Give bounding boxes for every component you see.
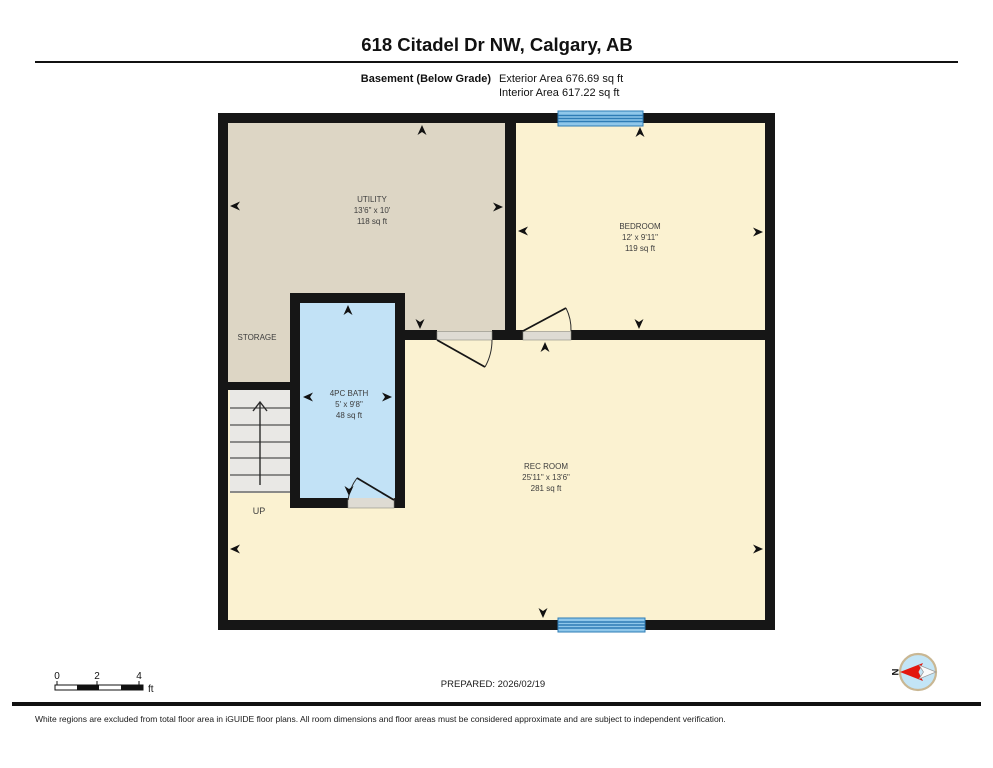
- up-label: UP: [253, 506, 266, 516]
- bath-room-area: 48 sq ft: [336, 411, 363, 420]
- bath-room-label: 4PC BATH: [330, 389, 369, 398]
- scale-tick-2: 2: [94, 671, 100, 682]
- window-bottom-icon: [558, 618, 645, 632]
- utility-room-dims: 13'6" x 10': [354, 206, 391, 215]
- rec-room-label: REC ROOM: [524, 462, 568, 471]
- utility-room-area: 118 sq ft: [357, 217, 388, 226]
- floor-plan-canvas: 618 Citadel Dr NW, Calgary, AB Basement …: [0, 0, 993, 768]
- footer-divider: [12, 702, 981, 706]
- rec-room-dims: 25'11" x 13'6": [522, 473, 570, 482]
- rec-room-area: 281 sq ft: [531, 484, 562, 493]
- header-divider: [35, 61, 958, 63]
- scale-bar: 0 2 4 ft: [54, 671, 154, 695]
- disclaimer-text: White regions are excluded from total fl…: [35, 714, 726, 724]
- scale-tick-4: 4: [136, 671, 142, 682]
- bedroom-room-dims: 12' x 9'11": [622, 233, 658, 242]
- bedroom-room-area: 119 sq ft: [625, 244, 656, 253]
- page-title: 618 Citadel Dr NW, Calgary, AB: [361, 34, 632, 55]
- window-top-icon: [558, 111, 643, 126]
- floor-plan-page: 618 Citadel Dr NW, Calgary, AB Basement …: [0, 0, 993, 768]
- bath-room-dims: 5' x 9'8": [335, 400, 363, 409]
- exterior-area-label: Exterior Area 676.69 sq ft: [499, 73, 623, 85]
- north-label: N: [891, 668, 902, 675]
- bath-door-threshold: [348, 497, 394, 508]
- stairs: [230, 390, 290, 493]
- scale-unit-label: ft: [148, 684, 154, 695]
- floor-plan: UTILITY 13'6" x 10' 118 sq ft BEDROOM 12…: [218, 111, 775, 632]
- scale-tick-0: 0: [54, 671, 60, 682]
- floor-label: Basement (Below Grade): [361, 73, 492, 85]
- utility-room-label: UTILITY: [357, 195, 387, 204]
- bedroom-room-label: BEDROOM: [619, 222, 661, 231]
- prepared-label: PREPARED: 2026/02/19: [441, 679, 545, 690]
- north-indicator: N: [891, 654, 937, 690]
- partition-wall: [505, 113, 516, 340]
- interior-area-label: Interior Area 617.22 sq ft: [499, 87, 619, 99]
- storage-label: STORAGE: [238, 333, 277, 342]
